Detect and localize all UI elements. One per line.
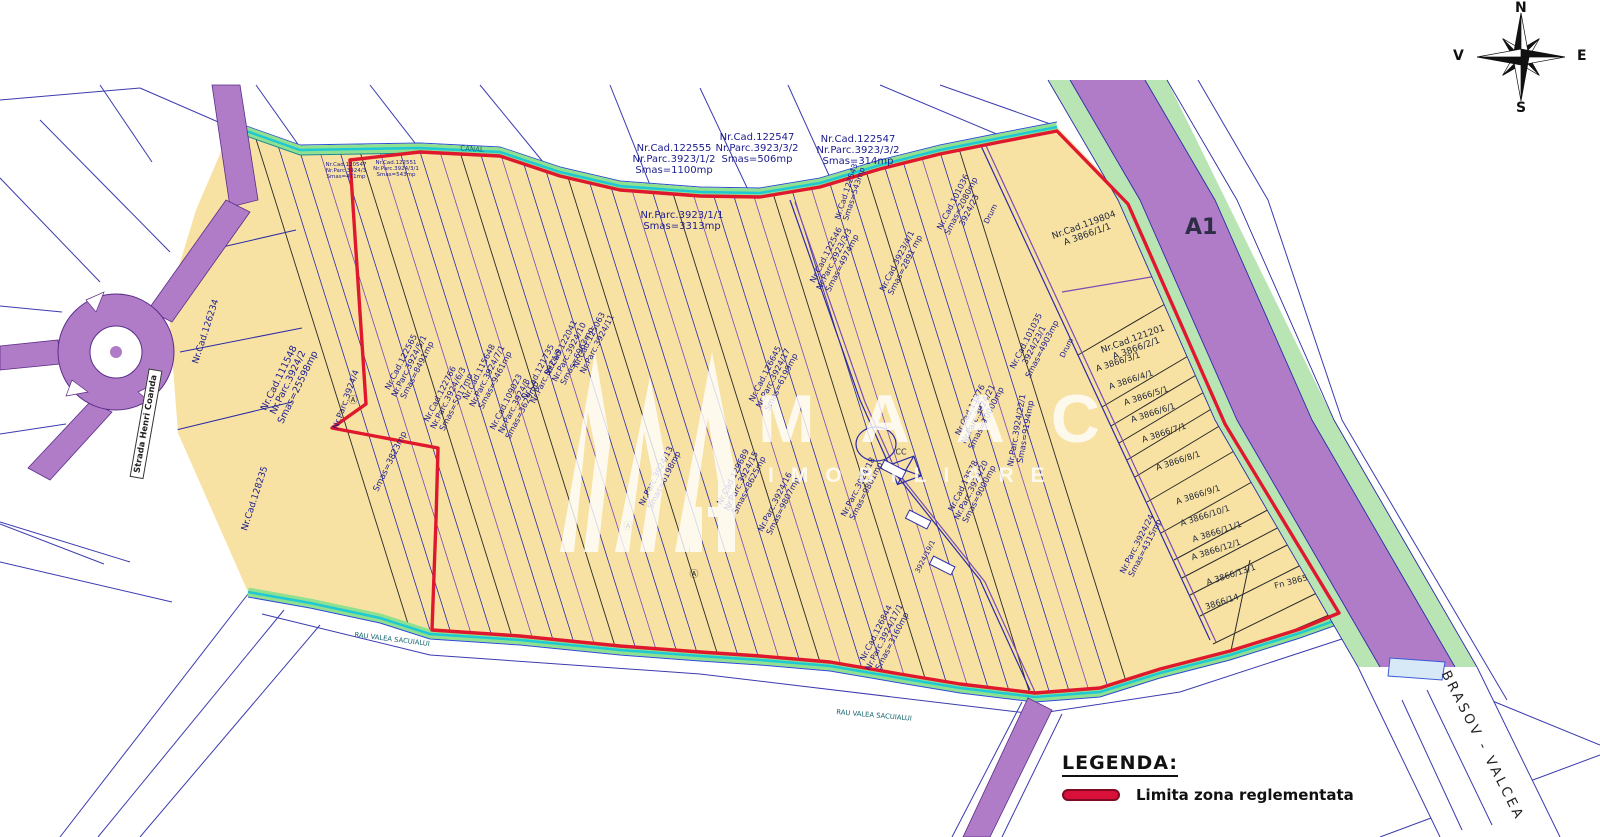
compass-rose: N S E V: [1445, 0, 1595, 118]
compass-north-label: N: [1515, 0, 1527, 16]
legend: LEGENDA: Limita zona reglementata: [1062, 752, 1354, 804]
legend-item-label: Limita zona reglementata: [1136, 786, 1354, 804]
south-road: [952, 698, 1062, 837]
compass-east-label: E: [1577, 48, 1587, 64]
map-canvas: Nr.Cad.122555Nr.Parc.3923/1/2Smas=1100mp…: [0, 0, 1600, 837]
compass-south-label: S: [1516, 100, 1526, 116]
legend-red-line-swatch: [1062, 789, 1120, 801]
compass-west-label: V: [1453, 48, 1464, 64]
cadastral-map: [0, 0, 1600, 837]
a1-highway-label: A1: [1185, 215, 1217, 240]
legend-item: Limita zona reglementata: [1062, 786, 1354, 804]
legend-title: LEGENDA:: [1062, 752, 1178, 777]
